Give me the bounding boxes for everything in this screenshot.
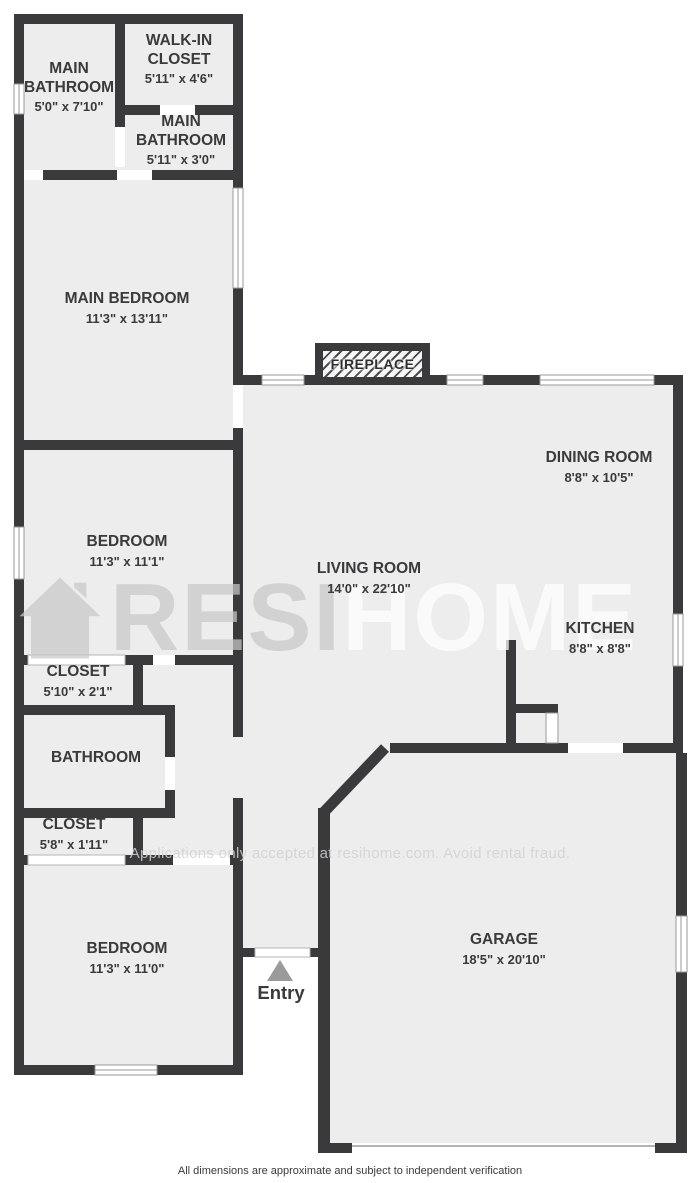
room-label-walk-in-closet: WALK-IN CLOSET 5'11" x 4'6" xyxy=(127,32,231,88)
room-label-bedroom-middle: BEDROOM 11'3" x 11'1" xyxy=(47,533,207,570)
room-label-closet-lower: CLOSET 5'8" x 1'11" xyxy=(14,816,134,853)
room-label-main-bathroom-upper: MAIN BATHROOM 5'0" x 7'10" xyxy=(21,60,117,116)
room-label-main-bedroom: MAIN BEDROOM 11'3" x 13'11" xyxy=(32,290,222,327)
entry-label: Entry xyxy=(257,982,304,1004)
room-label-dining-room: DINING ROOM 8'8" x 10'5" xyxy=(509,449,689,486)
room-label-bathroom: BATHROOM xyxy=(21,749,171,770)
disclaimer-text: All dimensions are approximate and subje… xyxy=(0,1165,700,1177)
fireplace: FIREPLACE xyxy=(315,343,430,385)
room-label-main-bathroom-lower: MAIN BATHROOM 5'11" x 3'0" xyxy=(131,113,231,169)
room-label-kitchen: KITCHEN 8'8" x 8'8" xyxy=(530,620,670,657)
room-label-garage: GARAGE 18'5" x 20'10" xyxy=(404,931,604,968)
floorplan: FIREPLACE MAIN BATHROOM 5'0" x 7'10" WAL… xyxy=(0,0,700,1183)
room-label-closet-upper: CLOSET 5'10" x 2'1" xyxy=(18,663,138,700)
fireplace-label: FIREPLACE xyxy=(315,343,430,385)
garage-door xyxy=(352,1143,655,1153)
room-label-living-room: LIVING ROOM 14'0" x 22'10" xyxy=(269,560,469,597)
entry-arrow-icon xyxy=(267,960,293,981)
room-label-bedroom-bottom: BEDROOM 11'3" x 11'0" xyxy=(47,940,207,977)
